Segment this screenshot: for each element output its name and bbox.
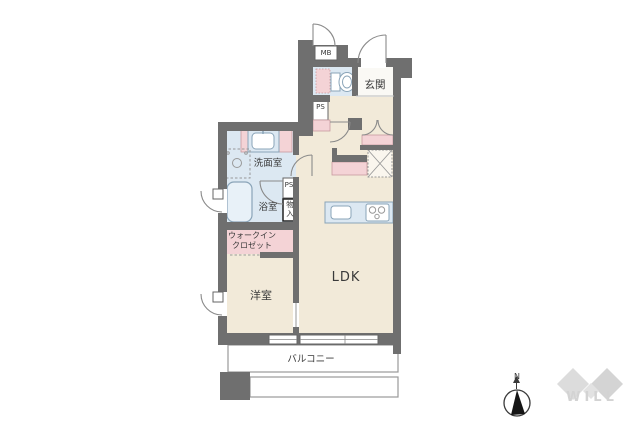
hall-shelf bbox=[313, 120, 330, 131]
balcony-side-block bbox=[220, 372, 250, 400]
compass-icon bbox=[504, 376, 530, 416]
floor-plan-canvas: MB 玄関 PS PS 洗面室 浴室 物入 ウォークインクロゼット 洋室 LDK… bbox=[0, 0, 640, 427]
walk-in-closet-label: ウォークインクロゼット bbox=[226, 231, 278, 251]
watermark-text: WILL bbox=[557, 390, 627, 405]
western-room-label: 洋室 bbox=[236, 287, 286, 303]
balcony-label: バルコニー bbox=[266, 351, 356, 365]
entrance-door-gap bbox=[361, 57, 386, 68]
kitchen-back-cabinet bbox=[332, 162, 367, 175]
western-room-window-leaf bbox=[213, 292, 223, 302]
washroom-label: 洗面室 bbox=[238, 155, 298, 169]
ldk-label: LDK bbox=[318, 270, 374, 285]
compass-north-label: N bbox=[511, 372, 523, 381]
toilet-cabinet bbox=[316, 69, 330, 93]
pipe-space-label: PS bbox=[283, 181, 295, 189]
pipe-space-label: PS bbox=[314, 103, 327, 111]
balcony-ledge bbox=[250, 377, 398, 397]
bathroom-window-leaf bbox=[213, 189, 223, 199]
vanity-side-right bbox=[279, 129, 292, 152]
meter-box-door-arc bbox=[313, 24, 335, 46]
kitchen-sink-icon bbox=[331, 206, 351, 219]
storage-label: 物入 bbox=[284, 201, 296, 218]
toilet-bowl-inner bbox=[343, 76, 352, 88]
entrance-label: 玄関 bbox=[356, 77, 394, 92]
hall-closet bbox=[362, 135, 393, 145]
washbasin-icon bbox=[252, 133, 274, 149]
meter-box-label: MB bbox=[315, 49, 337, 57]
bathroom-label: 浴室 bbox=[247, 199, 289, 213]
